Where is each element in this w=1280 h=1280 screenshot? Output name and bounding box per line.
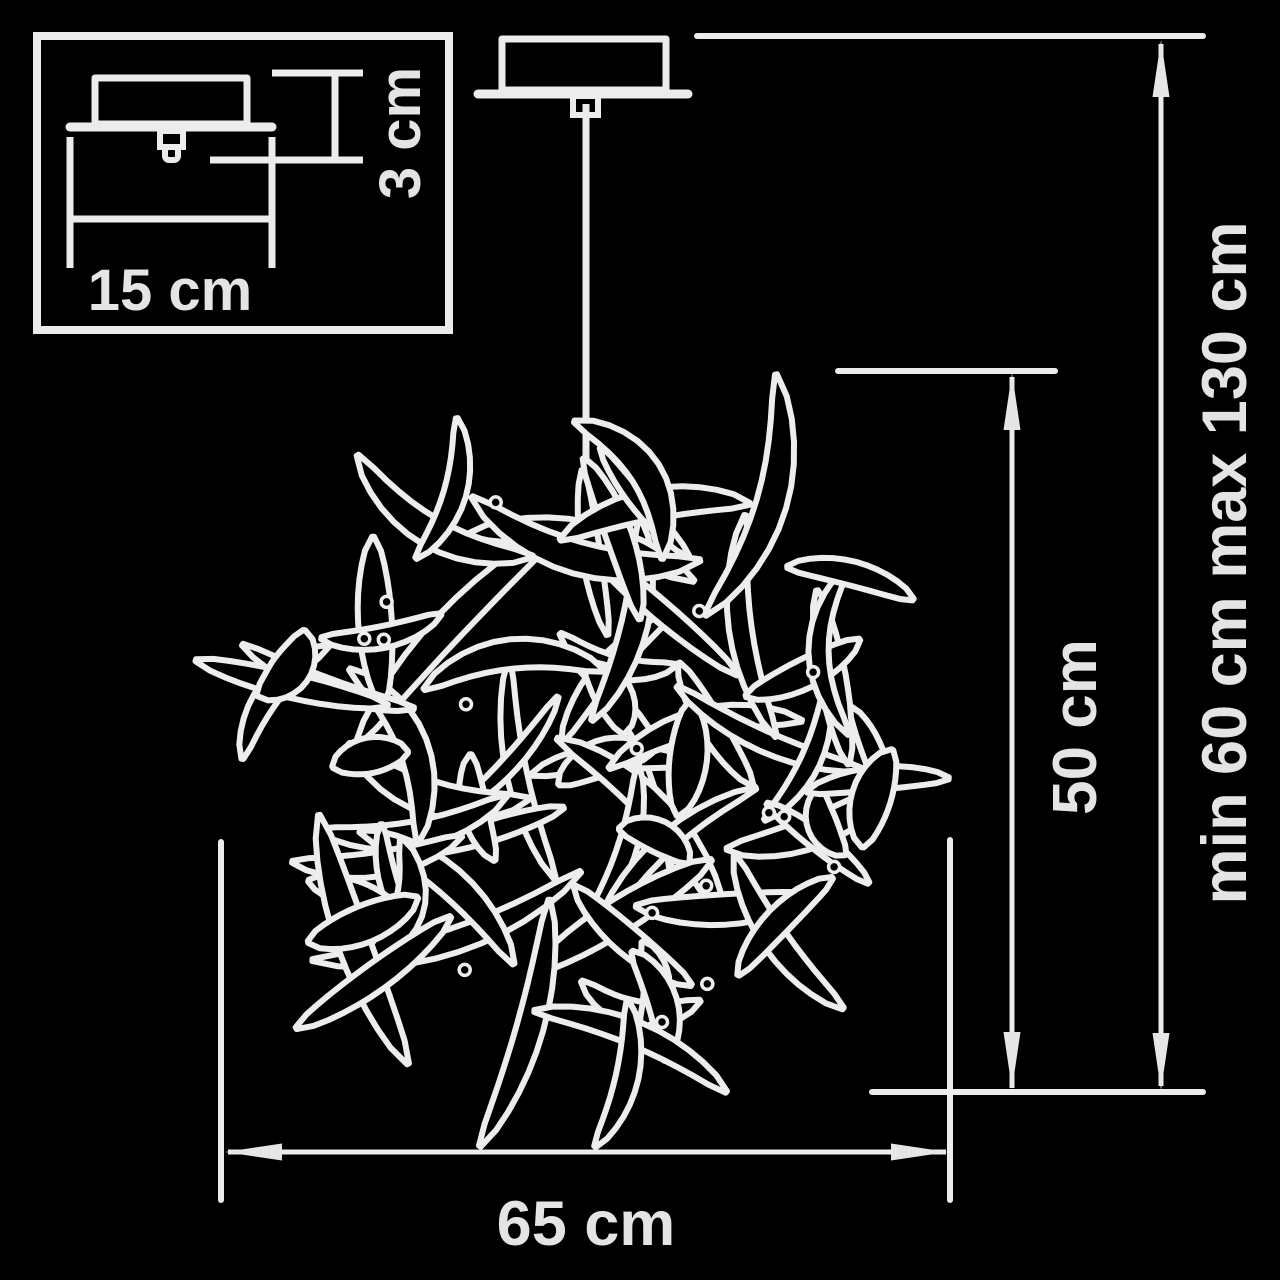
mounting-bracket — [95, 78, 247, 124]
dimension-diagram: 15 cm 3 cm min 60 cm max 130 cm 50 cm — [0, 0, 1280, 1280]
label-canopy-width: 15 cm — [88, 258, 252, 323]
arrow-left-icon — [225, 1144, 282, 1161]
canopy-box — [502, 39, 666, 90]
connector-lower — [165, 147, 178, 160]
label-shade-height: 50 cm — [1041, 639, 1110, 815]
ceiling-canopy — [478, 39, 688, 465]
diagram-canvas: 15 cm 3 cm min 60 cm max 130 cm 50 cm — [0, 0, 1280, 1280]
dimension-shade-height: 50 cm — [838, 371, 1203, 1092]
arrow-up-icon — [1153, 40, 1170, 97]
label-canopy-height: 3 cm — [368, 67, 433, 199]
arrow-down-icon — [1153, 1033, 1170, 1090]
canopy-detail-inset: 15 cm 3 cm — [37, 36, 449, 330]
dimension-canopy-width: 15 cm — [70, 137, 272, 323]
label-shade-diameter: 65 cm — [497, 1189, 676, 1259]
arrow-right-icon — [891, 1144, 948, 1161]
label-suspension-range: min 60 cm max 130 cm — [1190, 222, 1260, 905]
arrow-down-icon — [1004, 1032, 1021, 1089]
lampshade-tangle — [196, 374, 949, 1147]
arrow-up-icon — [1004, 373, 1021, 430]
